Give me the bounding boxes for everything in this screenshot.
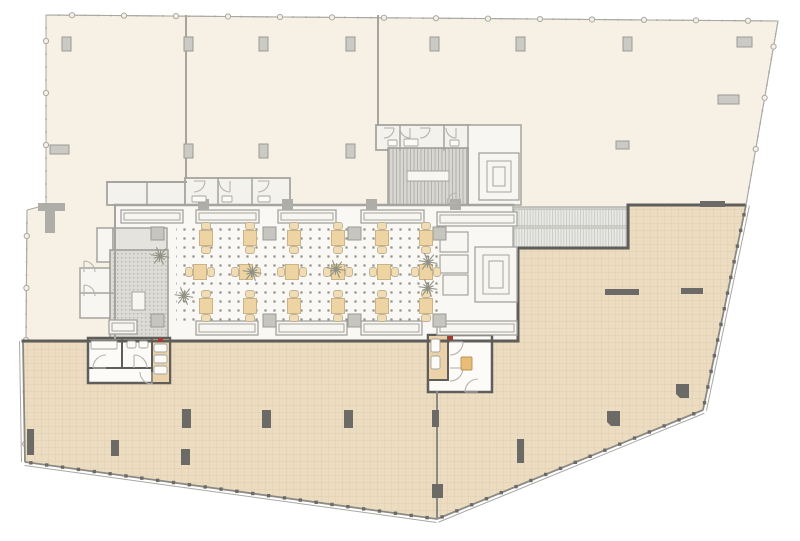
- column-dark: [605, 289, 639, 295]
- column-dark: [432, 410, 439, 427]
- column-dark: [262, 410, 271, 428]
- elevator-shaft-north: [479, 153, 519, 200]
- floor-plan-canvas: [0, 0, 800, 541]
- duct-fixture: [154, 366, 167, 374]
- planter-bottom-1: [109, 320, 137, 334]
- stair-west-landing: [132, 292, 145, 310]
- cafe-table: [332, 223, 345, 254]
- escalator-segment-b: [440, 255, 468, 273]
- column: [718, 95, 739, 104]
- duct-fixture: [154, 344, 167, 352]
- column-dark: [111, 440, 119, 456]
- sink-counter: [450, 140, 459, 146]
- sink-counter: [91, 341, 117, 349]
- column-dark: [181, 449, 190, 465]
- escalator-segment-c: [443, 275, 468, 295]
- cafe-table: [244, 291, 257, 322]
- column: [737, 37, 752, 47]
- sink-counter: [222, 196, 232, 202]
- toilet: [127, 341, 136, 348]
- sink-counter: [192, 196, 206, 202]
- lobby-column: [433, 227, 446, 240]
- lobby-column: [151, 314, 164, 327]
- sink-counter: [388, 140, 397, 146]
- cafe-table: [200, 291, 213, 322]
- toilet: [431, 356, 440, 369]
- cafe-table: [288, 223, 301, 254]
- planter-top-5: [437, 212, 517, 226]
- column: [259, 144, 268, 158]
- column-dark: [27, 429, 34, 455]
- lobby-column: [433, 314, 446, 327]
- wall-column: [366, 199, 377, 210]
- column: [184, 144, 193, 158]
- cafe-table: [288, 291, 301, 322]
- cafe-table: [200, 223, 213, 254]
- sink-counter: [258, 196, 270, 202]
- column-dark: [517, 439, 524, 463]
- column: [50, 145, 69, 154]
- elevator-shaft-south: [475, 247, 517, 302]
- planter-bottom-5: [437, 321, 517, 335]
- cafe-table: [332, 291, 345, 322]
- planter-top-3: [278, 210, 336, 223]
- sink-counter: [404, 139, 418, 146]
- column-dark: [681, 288, 703, 294]
- column: [346, 144, 355, 158]
- walkway-band-lower: [514, 228, 628, 247]
- walkway-band-upper: [514, 209, 628, 226]
- lobby-column: [348, 314, 361, 327]
- planter-top-1: [121, 210, 183, 223]
- cafe-table: [376, 291, 389, 322]
- column-dark: [182, 409, 191, 428]
- column-dark: [700, 201, 725, 207]
- column-chamfer: [676, 384, 689, 398]
- toilet: [431, 339, 440, 352]
- column-dark: [344, 410, 353, 428]
- cafe-table: [376, 223, 389, 254]
- lobby-column: [263, 314, 276, 327]
- cafe-table: [420, 223, 433, 254]
- column-chamfer: [607, 411, 620, 426]
- column: [184, 37, 193, 51]
- planter-bottom-2: [196, 321, 258, 335]
- toilet: [139, 341, 148, 348]
- lobby-column: [151, 227, 164, 240]
- planter-top-2: [196, 210, 259, 223]
- floor-plan: [0, 0, 800, 541]
- panel-marker: [158, 338, 163, 342]
- column: [516, 37, 525, 51]
- duct-fixture: [154, 355, 167, 363]
- wall-column: [282, 199, 293, 210]
- column: [430, 37, 439, 51]
- wall-column: [450, 199, 461, 210]
- column: [259, 37, 268, 51]
- column-dark: [432, 484, 443, 498]
- lobby-column: [348, 227, 361, 240]
- planter-bottom-4: [361, 321, 422, 335]
- stair-central-landing: [407, 171, 449, 181]
- column: [616, 141, 629, 149]
- column: [623, 37, 632, 51]
- planter-bottom-3: [276, 321, 347, 335]
- column: [346, 37, 355, 51]
- column: [62, 37, 71, 51]
- water-heater: [461, 357, 472, 370]
- lobby-column: [263, 227, 276, 240]
- planter-top-4: [361, 210, 424, 223]
- panel-marker: [448, 336, 453, 340]
- cafe-table: [244, 223, 257, 254]
